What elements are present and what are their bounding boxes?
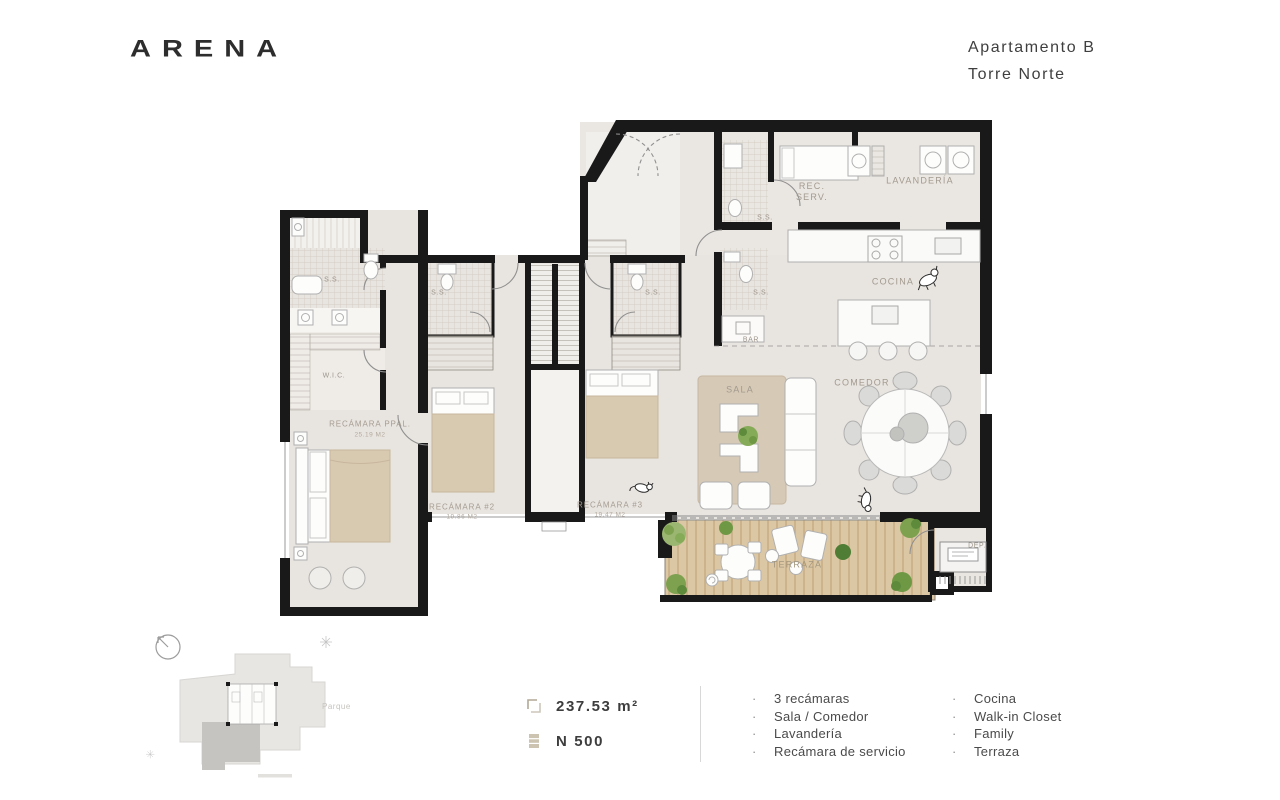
spec-unit: N 500 (525, 732, 604, 750)
apartment-title: Apartamento B Torre Norte (968, 34, 1096, 88)
room-area-recamara-3: 19.47 M2 (594, 510, 625, 521)
area-value: 237.53 m² (556, 698, 639, 715)
room-label-ss-bed3: S.S. (645, 288, 661, 299)
feature-item: Family (950, 725, 1062, 743)
floor-plan: REC. SERV. LAVANDERÍA S.S. S.S. BAR COCI… (280, 118, 1000, 618)
apartment-name: Apartamento B (968, 34, 1096, 61)
plant (835, 544, 851, 560)
feature-item: Recámara de servicio (750, 743, 906, 761)
spec-area: 237.53 m² (525, 697, 639, 715)
room-label-cocina: COCINA (872, 277, 914, 288)
plant (662, 522, 686, 546)
unit-value: N 500 (556, 733, 604, 750)
room-label-wic: W.I.C. (323, 371, 346, 382)
room-label-ss-master: S.S. (324, 275, 340, 286)
room-label-rec-serv: REC. SERV. (796, 181, 828, 203)
room-label-ss-service: S.S. (757, 213, 773, 224)
room-area-recamara-2: 19.86 M2 (446, 512, 477, 523)
star-icon (146, 750, 154, 758)
feature-item: Terraza (950, 743, 1062, 761)
room-label-comedor: COMEDOR (834, 378, 889, 389)
feature-item: 3 recámaras (750, 690, 906, 708)
room-label-ss-powder: S.S. (753, 288, 769, 299)
bed-2 (432, 388, 494, 492)
bed-3 (586, 370, 658, 458)
brochure-page: ARENA Apartamento B Torre Norte (0, 0, 1280, 800)
north-compass-icon (156, 635, 180, 659)
room-label-recamara-ppal: RECÁMARA PPAL. (329, 419, 411, 430)
keyplan-parque-label: Parque (322, 702, 351, 711)
footer-divider (700, 686, 701, 762)
room-label-bar: BAR (743, 335, 759, 346)
room-label-ss-bed2: S.S. (431, 288, 447, 299)
room-label-terraza: TERRAZA (772, 560, 822, 571)
room-label-sala: SALA (726, 385, 754, 396)
building-core (226, 682, 278, 726)
room-label-lavanderia: LAVANDERÍA (886, 176, 954, 187)
feature-list-right: Cocina Walk-in Closet Family Terraza (950, 690, 1062, 760)
feature-list-left: 3 recámaras Sala / Comedor Lavandería Re… (750, 690, 906, 760)
service-bed (780, 146, 858, 180)
key-plan: Parque (140, 622, 360, 790)
feature-item: Sala / Comedor (750, 708, 906, 726)
plant (719, 521, 733, 535)
feature-item: Walk-in Closet (950, 708, 1062, 726)
dining-set (844, 372, 966, 494)
room-label-dep: DEP. (968, 541, 986, 552)
street-mark (258, 774, 292, 778)
tower-name: Torre Norte (968, 61, 1096, 88)
floor-plan-drawing (280, 118, 1000, 618)
brand-logo: ARENA (130, 36, 288, 63)
feature-item: Cocina (950, 690, 1062, 708)
plant (738, 426, 758, 446)
feature-item: Lavandería (750, 725, 906, 743)
room-area-recamara-ppal: 25.19 M2 (354, 430, 385, 441)
star-icon (320, 636, 332, 648)
area-icon (525, 697, 543, 715)
floors (285, 122, 992, 612)
level-icon (525, 732, 543, 750)
